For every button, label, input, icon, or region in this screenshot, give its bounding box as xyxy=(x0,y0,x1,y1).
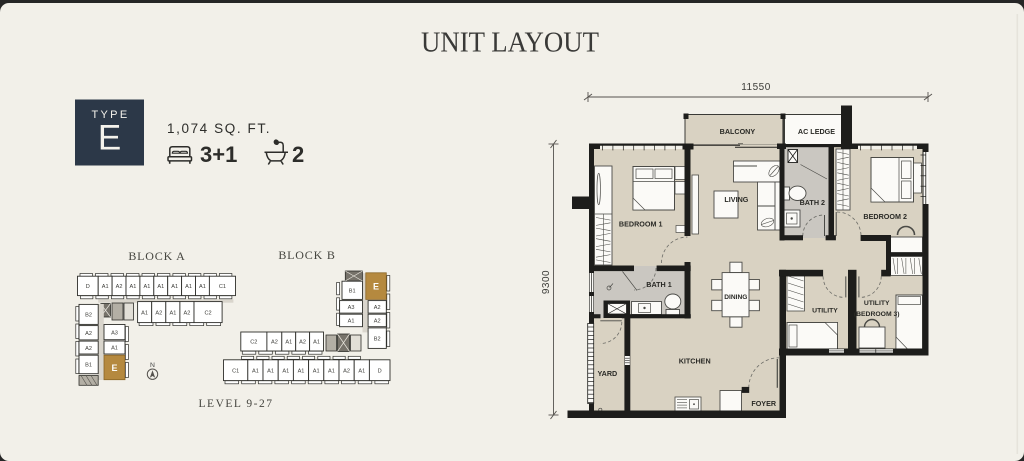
svg-text:A1: A1 xyxy=(102,284,109,290)
svg-text:A1: A1 xyxy=(141,310,148,316)
svg-text:A1: A1 xyxy=(169,310,176,316)
svg-text:A1: A1 xyxy=(143,284,150,290)
svg-text:A1: A1 xyxy=(285,340,292,346)
svg-text:B1: B1 xyxy=(349,289,356,295)
svg-text:B2: B2 xyxy=(374,336,381,342)
svg-text:LEVEL 9-27: LEVEL 9-27 xyxy=(199,398,274,410)
svg-text:D: D xyxy=(378,368,382,374)
svg-text:A2: A2 xyxy=(116,284,123,290)
svg-text:E: E xyxy=(373,282,379,292)
svg-text:BEDROOM 1: BEDROOM 1 xyxy=(619,219,663,228)
svg-text:A2: A2 xyxy=(343,368,350,374)
svg-text:BEDROOM 2: BEDROOM 2 xyxy=(863,212,907,221)
svg-text:BATH 1: BATH 1 xyxy=(646,280,671,289)
svg-text:BATH 2: BATH 2 xyxy=(800,198,825,207)
svg-text:KITCHEN: KITCHEN xyxy=(679,357,711,366)
svg-text:A1: A1 xyxy=(282,368,289,374)
svg-text:A1: A1 xyxy=(328,368,335,374)
svg-text:AC LEDGE: AC LEDGE xyxy=(798,127,835,136)
svg-text:A1: A1 xyxy=(171,284,178,290)
svg-text:C2: C2 xyxy=(205,310,212,316)
svg-text:E: E xyxy=(98,119,121,158)
svg-text:A1: A1 xyxy=(129,284,136,290)
svg-text:A2: A2 xyxy=(374,305,381,311)
svg-text:A2: A2 xyxy=(85,346,92,352)
svg-text:YARD: YARD xyxy=(598,369,618,378)
svg-text:A1: A1 xyxy=(111,346,118,352)
svg-text:B1: B1 xyxy=(85,363,92,369)
svg-text:A1: A1 xyxy=(157,284,164,290)
svg-text:A1: A1 xyxy=(358,368,365,374)
svg-text:A1: A1 xyxy=(348,319,355,325)
svg-text:UTILITY: UTILITY xyxy=(812,308,838,315)
svg-text:LIVING: LIVING xyxy=(724,195,748,204)
svg-text:FOYER: FOYER xyxy=(751,399,777,408)
svg-text:A1: A1 xyxy=(298,368,305,374)
svg-text:9300: 9300 xyxy=(541,270,552,294)
svg-text:A2: A2 xyxy=(374,319,381,325)
svg-text:UNIT LAYOUT: UNIT LAYOUT xyxy=(421,28,599,59)
svg-text:BALCONY: BALCONY xyxy=(720,127,756,136)
svg-text:C1: C1 xyxy=(219,284,226,290)
svg-text:C2: C2 xyxy=(250,340,257,346)
svg-text:DINING: DINING xyxy=(724,294,747,301)
svg-text:A3: A3 xyxy=(111,330,118,336)
svg-text:1,074 SQ. FT.: 1,074 SQ. FT. xyxy=(167,121,271,136)
svg-text:A2: A2 xyxy=(299,340,306,346)
svg-text:D: D xyxy=(86,284,90,290)
svg-text:11550: 11550 xyxy=(741,82,771,93)
svg-text:2: 2 xyxy=(292,142,304,167)
svg-text:A2: A2 xyxy=(85,331,92,337)
svg-text:A2: A2 xyxy=(183,310,190,316)
svg-text:N: N xyxy=(150,362,155,369)
svg-text:BLOCK A: BLOCK A xyxy=(128,249,185,263)
svg-text:A1: A1 xyxy=(313,340,320,346)
svg-text:A2: A2 xyxy=(271,340,278,346)
svg-text:BLOCK B: BLOCK B xyxy=(278,248,335,262)
svg-text:A1: A1 xyxy=(199,284,206,290)
svg-text:A1: A1 xyxy=(267,368,274,374)
svg-text:C1: C1 xyxy=(232,368,239,374)
svg-text:A1: A1 xyxy=(313,368,320,374)
svg-text:B2: B2 xyxy=(85,313,92,319)
svg-text:A1: A1 xyxy=(185,284,192,290)
svg-text:A2: A2 xyxy=(155,310,162,316)
svg-text:E: E xyxy=(111,363,117,373)
svg-text:UTILITY: UTILITY xyxy=(864,300,890,307)
svg-text:A3: A3 xyxy=(348,305,355,311)
svg-text:A1: A1 xyxy=(252,368,259,374)
svg-text:3+1: 3+1 xyxy=(200,142,237,167)
svg-text:(BEDROOM 3): (BEDROOM 3) xyxy=(854,311,900,318)
